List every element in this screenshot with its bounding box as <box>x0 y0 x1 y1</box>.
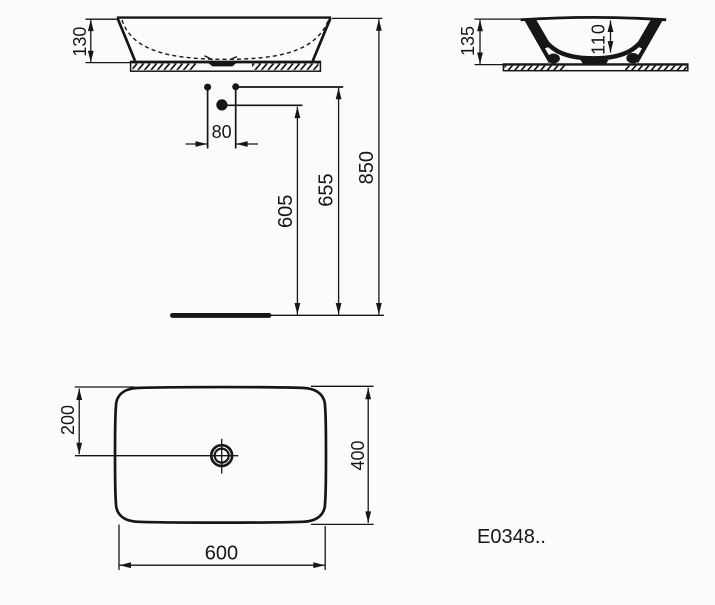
svg-text:110: 110 <box>589 23 609 55</box>
svg-text:200: 200 <box>58 405 78 435</box>
svg-text:400: 400 <box>348 440 368 470</box>
svg-text:605: 605 <box>275 195 297 228</box>
svg-text:80: 80 <box>212 122 232 142</box>
svg-text:600: 600 <box>205 543 238 565</box>
svg-text:135: 135 <box>458 26 478 56</box>
svg-text:E0348..: E0348.. <box>477 526 546 548</box>
svg-text:130: 130 <box>70 27 90 57</box>
svg-text:850: 850 <box>356 151 378 184</box>
svg-text:655: 655 <box>316 173 338 206</box>
